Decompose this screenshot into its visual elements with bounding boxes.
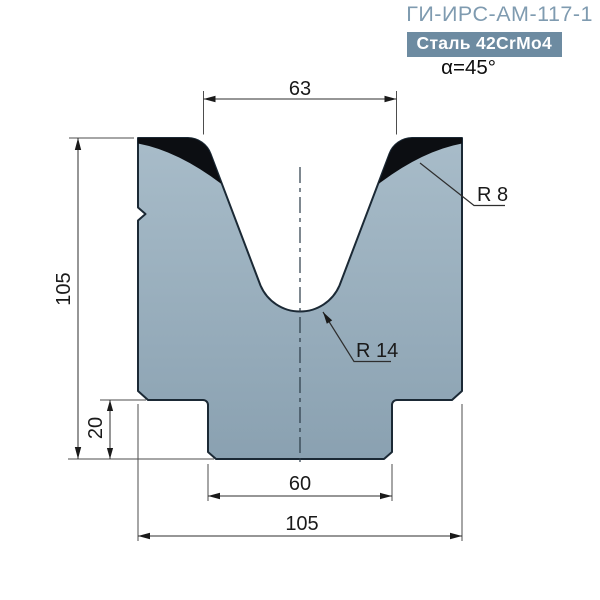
- dimension-label-die-height: 105: [53, 272, 75, 305]
- dimension-label-die-width: 105: [285, 513, 318, 535]
- dimension-tang-width: 60: [208, 464, 392, 501]
- arrowhead: [107, 448, 113, 459]
- arrowhead: [204, 96, 216, 102]
- technical-drawing: 63 105 20 60: [0, 0, 600, 600]
- radius-label-r14: R 14: [356, 340, 398, 362]
- dimension-label-opening-width: 63: [289, 78, 311, 100]
- arrowhead: [380, 493, 392, 499]
- arrowhead: [75, 138, 81, 150]
- dimension-opening-width: 63: [204, 78, 397, 135]
- arrowhead: [450, 533, 462, 539]
- radius-label-r8: R 8: [477, 184, 508, 206]
- arrowhead: [385, 96, 397, 102]
- arrowhead: [75, 447, 81, 459]
- arrowhead: [107, 400, 113, 411]
- dimension-tang-height: 20: [85, 400, 146, 459]
- dimension-label-tang-height: 20: [85, 417, 107, 439]
- arrowhead: [208, 493, 220, 499]
- dimension-label-tang-width: 60: [289, 473, 311, 495]
- drawing-sheet: ГИ-ИРС-АМ-117-1 Сталь 42CrMo4 α=45° 63: [0, 0, 600, 600]
- arrowhead: [138, 533, 150, 539]
